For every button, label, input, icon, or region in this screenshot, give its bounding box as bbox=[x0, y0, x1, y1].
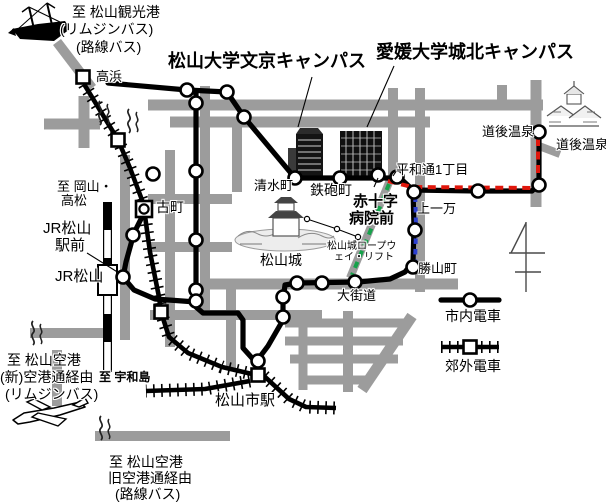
station-stop bbox=[147, 168, 160, 181]
label-to-airport-new-2: (新)空港通経由 bbox=[0, 370, 93, 385]
label-legend-suburban-label: 郊外電車 bbox=[445, 359, 501, 374]
label-shimizumachi: 清水町 bbox=[254, 179, 293, 193]
label-okaido: 大街道 bbox=[337, 289, 376, 303]
label-dogo-onsen-place: 道後温泉 bbox=[556, 138, 606, 152]
label-to-airport-new-1: 至 松山空港 bbox=[7, 353, 81, 368]
station-stop bbox=[277, 291, 290, 304]
label-matsuyama-univ-bunkyo: 松山大学文京キャンパス bbox=[168, 52, 366, 71]
station-square-matsuyama-shieki-suburban bbox=[252, 369, 265, 382]
label-katsuyamacho: 勝山町 bbox=[418, 262, 457, 276]
hot-spring-icon bbox=[32, 321, 34, 345]
label-teppocho: 鉄砲町 bbox=[310, 183, 352, 198]
label-kamiichiman: 上一万 bbox=[417, 202, 456, 216]
label-to-airport-old-3: (路線バス) bbox=[115, 487, 180, 502]
station-stop bbox=[190, 295, 203, 308]
station-square bbox=[112, 134, 125, 147]
station-dogo-onsen bbox=[533, 126, 546, 139]
hot-spring-icon bbox=[136, 112, 138, 132]
label-to-uwajima: 至 宇和島 bbox=[99, 371, 150, 384]
label-sekijuji-line2: 病院前 bbox=[349, 211, 394, 227]
dogo-onsen-illustration bbox=[543, 80, 605, 132]
hot-spring-icon bbox=[128, 109, 130, 133]
label-rosen-bus-1: (路線バス) bbox=[76, 40, 141, 55]
label-legend-tram-label: 市内電車 bbox=[445, 309, 501, 324]
station-stop bbox=[221, 86, 234, 99]
map-canvas bbox=[0, 0, 606, 502]
label-ehime-univ-johoku: 愛媛大学城北キャンパス bbox=[376, 43, 574, 62]
station-square-takahama bbox=[77, 71, 90, 84]
label-takahama: 高浜 bbox=[96, 70, 122, 84]
label-to-okayama-line2: 高松 bbox=[61, 194, 87, 208]
university-buildings-illustration bbox=[288, 128, 382, 177]
station-stop bbox=[316, 277, 329, 290]
label-to-kanko-port: 至 松山観光港 bbox=[72, 5, 160, 20]
station-stop bbox=[127, 229, 140, 242]
station-square bbox=[155, 306, 168, 319]
ropeway-node bbox=[334, 226, 339, 231]
label-ropeway-line2: ェイ・リフト bbox=[334, 253, 394, 264]
route-red bbox=[388, 133, 538, 188]
matsuyama-castle-illustration bbox=[232, 192, 338, 253]
legend-suburban-station-icon bbox=[464, 341, 477, 354]
ropeway-node bbox=[304, 216, 309, 221]
legend-tram-stop-icon bbox=[464, 294, 477, 307]
label-sekijuji-line1: 赤十字 bbox=[353, 194, 398, 210]
station-okaido bbox=[349, 276, 362, 289]
station-sekijuji-byoin-mae bbox=[372, 169, 385, 182]
station-stop bbox=[533, 179, 546, 192]
north-arrow-icon bbox=[511, 223, 526, 253]
label-heiwadori-itchome: 平和通1丁目 bbox=[396, 163, 468, 177]
station-matsuyama-shieki bbox=[252, 355, 265, 368]
label-to-airport-old-2: 旧空港通経由 bbox=[108, 471, 192, 486]
label-komachi: 古町 bbox=[156, 200, 184, 215]
station-stop bbox=[472, 185, 485, 198]
label-jr-ekimae-line2: 駅前 bbox=[55, 238, 85, 254]
label-limousine-bus-1: (リムジンバス) bbox=[60, 22, 153, 37]
station-stop bbox=[291, 277, 304, 290]
station-stop bbox=[190, 165, 203, 178]
ropeway-node bbox=[355, 234, 360, 239]
station-stop bbox=[238, 111, 251, 124]
station-stop bbox=[190, 234, 203, 247]
station-stop bbox=[181, 84, 194, 97]
label-jr-ekimae-line1: JR松山 bbox=[43, 221, 91, 237]
label-jr-matsuyama: JR松山 bbox=[55, 269, 103, 285]
station-stop bbox=[409, 224, 422, 237]
hot-spring-icon bbox=[40, 324, 42, 344]
station-stop bbox=[190, 97, 203, 110]
label-matsuyamajo: 松山城 bbox=[260, 253, 302, 268]
matsuyama-transit-map: 至 松山観光港(リムジンバス)(路線バス)高浜松山大学文京キャンパス愛媛大学城北… bbox=[0, 0, 606, 502]
label-to-airport-old-1: 至 松山空港 bbox=[109, 455, 183, 470]
airplane-icon bbox=[13, 398, 88, 426]
label-matsuyama-shieki: 松山市駅 bbox=[215, 393, 275, 409]
label-ropeway-line1: 松山城ロープウ bbox=[327, 242, 396, 253]
label-to-okayama-line1: 至 岡山・ bbox=[57, 180, 113, 194]
station-komachi-circle bbox=[139, 204, 148, 213]
station-kamiichiman bbox=[408, 186, 421, 199]
label-to-airport-new-3: (リムジンバス) bbox=[5, 387, 98, 402]
station-stop bbox=[277, 311, 290, 324]
label-dogo-onsen-station: 道後温泉 bbox=[482, 125, 534, 139]
